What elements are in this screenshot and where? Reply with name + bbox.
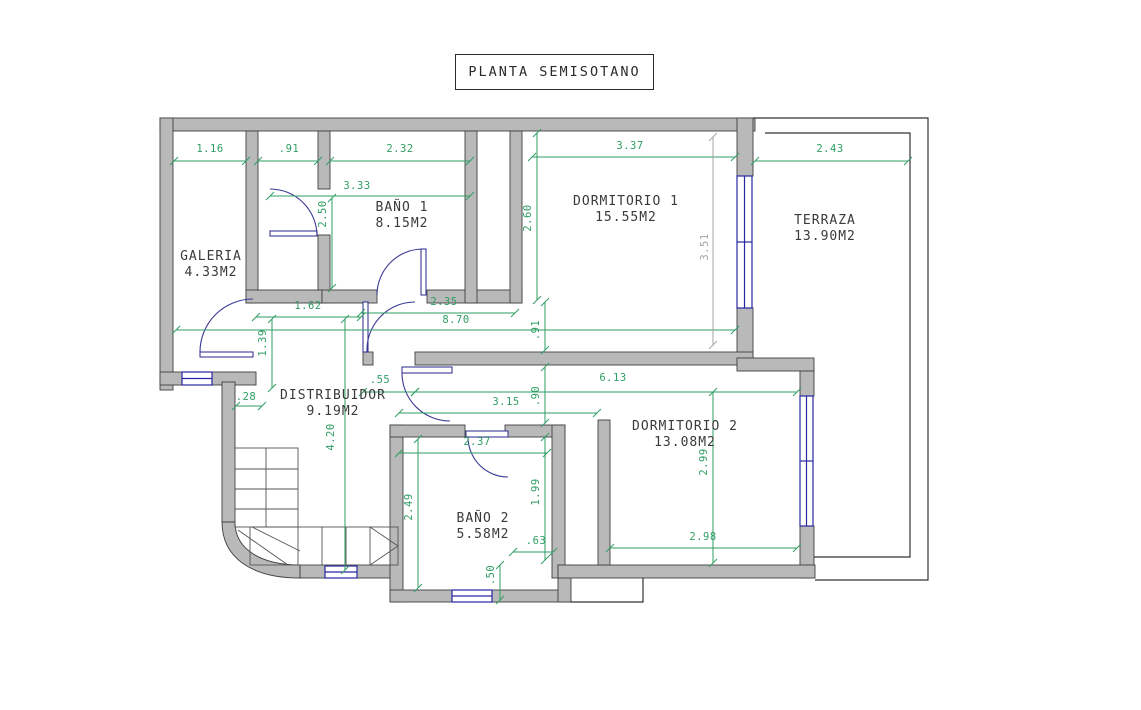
door-leaf xyxy=(421,249,426,295)
dimension-label: 3.37 xyxy=(616,140,643,152)
window xyxy=(737,176,752,308)
room-name: BAÑO 1 xyxy=(376,200,429,215)
room-area: 15.55M2 xyxy=(595,210,657,225)
door xyxy=(377,249,426,295)
dimension-label: 8.70 xyxy=(442,314,469,326)
dimension-label: .91 xyxy=(530,320,542,340)
dimension-label: .55 xyxy=(370,374,390,386)
room-area: 9.19M2 xyxy=(307,404,360,419)
floor-plan-canvas: PLANTA SEMISOTANO GALERIA4.33M2BAÑO 18.1… xyxy=(0,0,1141,710)
wall xyxy=(510,131,522,303)
door xyxy=(200,299,253,357)
porch-edge xyxy=(570,578,643,602)
room-area: 4.33M2 xyxy=(185,265,238,280)
dimension-label: .28 xyxy=(236,391,256,403)
wall xyxy=(598,420,610,565)
dimension-label: .91 xyxy=(279,143,299,155)
room-name: BAÑO 2 xyxy=(457,511,510,526)
wall xyxy=(737,358,814,371)
dimension-label: 3.51 xyxy=(699,233,711,260)
wall xyxy=(363,352,373,365)
door-leaf xyxy=(402,367,452,373)
door-leaf xyxy=(270,231,317,236)
dimension-label: 4.20 xyxy=(325,423,337,450)
stairs xyxy=(235,448,398,565)
window xyxy=(800,396,813,526)
room-label-terraza: TERRAZA13.90M2 xyxy=(794,213,856,246)
dimension-label: 6.13 xyxy=(599,372,626,384)
wall xyxy=(737,118,753,176)
room-name: DORMITORIO 1 xyxy=(573,194,679,209)
door-leaf xyxy=(200,352,253,357)
dimension-label: 1.99 xyxy=(530,478,542,505)
room-area: 5.58M2 xyxy=(457,527,510,542)
dimension-label: 2.49 xyxy=(403,493,415,520)
dimension-label: 2.43 xyxy=(816,143,843,155)
dimension-label: 3.33 xyxy=(343,180,370,192)
dimension-label: 1.39 xyxy=(257,329,269,356)
wall xyxy=(160,118,755,131)
door xyxy=(363,302,415,352)
wall xyxy=(160,118,173,390)
dimension-label: 2.98 xyxy=(689,531,716,543)
room-label-dormitorio-1: DORMITORIO 115.55M2 xyxy=(573,194,679,227)
wall xyxy=(318,131,330,189)
dimension-label: 2.60 xyxy=(522,204,534,231)
door-arc xyxy=(367,302,415,352)
room-area: 8.15M2 xyxy=(376,216,429,231)
plan-title: PLANTA SEMISOTANO xyxy=(468,64,640,80)
room-name: DISTRIBUIDOR xyxy=(280,388,386,403)
door-arc xyxy=(377,249,423,295)
room-label-ba-o-2: BAÑO 25.58M2 xyxy=(457,511,510,544)
wall xyxy=(552,425,565,578)
door-arc xyxy=(200,299,253,352)
dimension-label: .50 xyxy=(485,565,497,585)
wall xyxy=(222,382,235,522)
door-arc xyxy=(402,373,450,421)
room-label-distribuidor: DISTRIBUIDOR9.19M2 xyxy=(280,388,386,421)
wall xyxy=(390,425,465,437)
dimension-label: 2.37 xyxy=(463,436,490,448)
dimension-label: .63 xyxy=(526,535,546,547)
room-label-dormitorio-2: DORMITORIO 213.08M2 xyxy=(632,419,738,452)
stair-winder xyxy=(252,527,300,551)
room-name: GALERIA xyxy=(180,249,242,264)
wall xyxy=(800,371,814,396)
wall-curved xyxy=(222,522,300,578)
room-area: 13.90M2 xyxy=(794,229,856,244)
wall xyxy=(465,131,477,303)
dimension-label: 2.99 xyxy=(698,448,710,475)
dimension-label: 1.16 xyxy=(196,143,223,155)
window xyxy=(325,566,357,578)
window xyxy=(452,590,492,602)
room-label-ba-o-1: BAÑO 18.15M2 xyxy=(376,200,429,233)
wall xyxy=(322,290,377,303)
dimension-label: 2.32 xyxy=(386,143,413,155)
floor-plan-drawing xyxy=(0,0,1141,710)
plan-title-box: PLANTA SEMISOTANO xyxy=(455,54,654,90)
room-name: TERRAZA xyxy=(794,213,856,228)
dimension-label: .90 xyxy=(530,386,542,406)
wall xyxy=(737,308,753,358)
room-label-galeria: GALERIA4.33M2 xyxy=(180,249,242,282)
window xyxy=(182,372,212,385)
wall xyxy=(558,565,815,578)
wall xyxy=(246,131,258,303)
dimension-label: 2.35 xyxy=(430,296,457,308)
dimension-label: 3.15 xyxy=(492,396,519,408)
dimension-label: 2.50 xyxy=(317,200,329,227)
wall xyxy=(415,352,753,365)
room-name: DORMITORIO 2 xyxy=(632,419,738,434)
dimension-label: 1.62 xyxy=(294,300,321,312)
